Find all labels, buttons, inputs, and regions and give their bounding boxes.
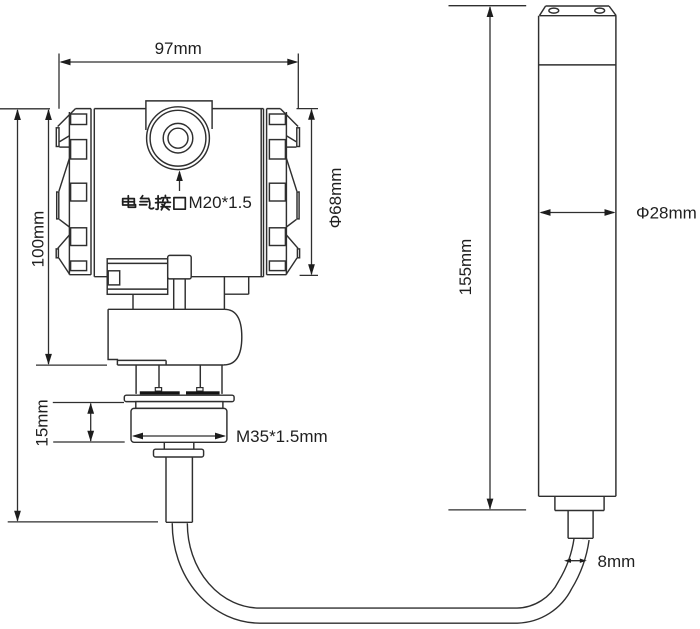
svg-text:97mm: 97mm xyxy=(155,39,202,58)
svg-text:M20*1.5: M20*1.5 xyxy=(189,193,252,212)
svg-text:Φ68mm: Φ68mm xyxy=(326,168,345,229)
svg-text:8mm: 8mm xyxy=(598,552,636,571)
svg-text:M35*1.5mm: M35*1.5mm xyxy=(236,427,328,446)
svg-text:155mm: 155mm xyxy=(456,239,475,296)
svg-text:Φ28mm: Φ28mm xyxy=(636,204,697,223)
svg-text:100mm: 100mm xyxy=(29,211,48,268)
svg-text:15mm: 15mm xyxy=(33,399,52,446)
